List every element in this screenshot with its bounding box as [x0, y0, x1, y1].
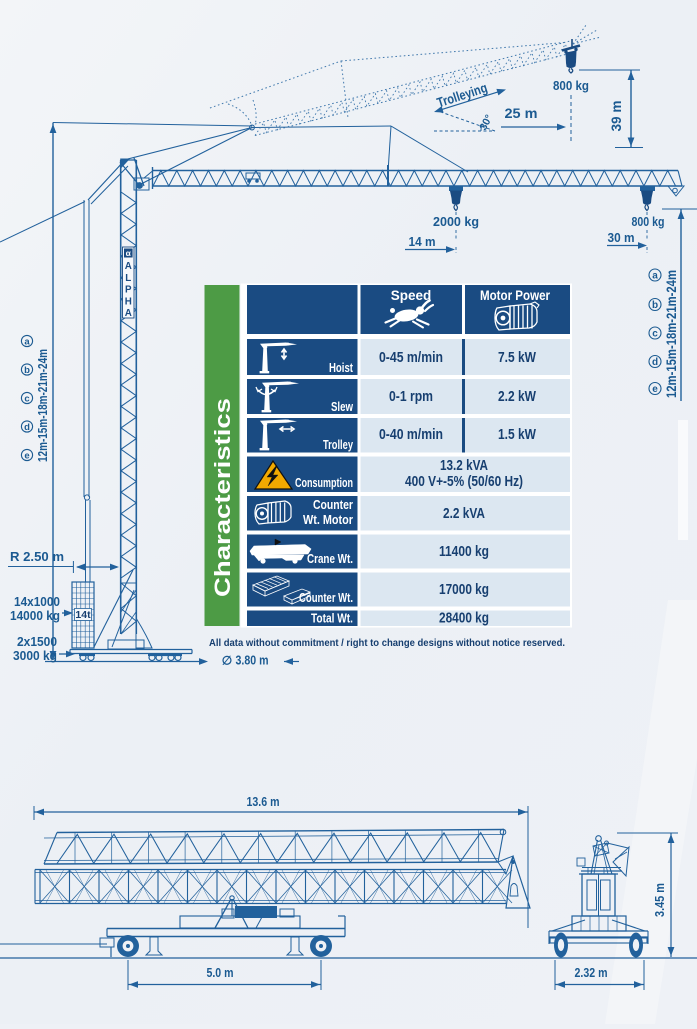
svg-text:11400 kg: 11400 kg — [439, 544, 489, 560]
svg-text:Slew: Slew — [331, 400, 353, 414]
svg-text:Speed: Speed — [391, 288, 432, 303]
svg-text:14 m: 14 m — [409, 234, 436, 249]
svg-text:800 kg: 800 kg — [632, 214, 665, 229]
svg-text:L: L — [125, 273, 131, 284]
svg-text:Total Wt.: Total Wt. — [311, 612, 353, 626]
svg-text:d: d — [652, 357, 658, 368]
svg-text:Counter: Counter — [313, 498, 353, 512]
svg-text:R 2.50 m: R 2.50 m — [10, 549, 64, 564]
svg-text:e: e — [24, 450, 29, 461]
svg-text:Characteristics: Characteristics — [210, 398, 235, 597]
svg-text:2.32 m: 2.32 m — [575, 965, 608, 980]
svg-text:e: e — [652, 384, 658, 395]
svg-text:12m-15m-18m-21m-24m: 12m-15m-18m-21m-24m — [663, 270, 679, 398]
svg-text:0-45 m/min: 0-45 m/min — [379, 349, 443, 366]
svg-text:13.6 m: 13.6 m — [247, 794, 280, 809]
svg-text:P: P — [125, 285, 132, 296]
svg-text:b: b — [24, 365, 30, 376]
svg-text:H: H — [125, 296, 132, 307]
svg-text:2x1500: 2x1500 — [17, 634, 57, 649]
svg-text:c: c — [652, 329, 658, 340]
svg-text:A: A — [125, 261, 132, 272]
svg-text:d: d — [24, 422, 30, 433]
svg-text:Consumption: Consumption — [295, 476, 353, 490]
svg-text:Crane Wt.: Crane Wt. — [307, 552, 353, 566]
svg-text:39 m: 39 m — [609, 101, 624, 132]
svg-text:Counter Wt.: Counter Wt. — [299, 591, 353, 605]
svg-text:28400 kg: 28400 kg — [439, 611, 489, 627]
svg-text:3.45 m: 3.45 m — [652, 883, 667, 917]
svg-text:A: A — [125, 308, 132, 319]
svg-text:3.80 m: 3.80 m — [236, 653, 269, 668]
svg-text:800 kg: 800 kg — [553, 78, 589, 93]
svg-text:a: a — [24, 336, 30, 347]
svg-text:1.5 kW: 1.5 kW — [498, 426, 537, 443]
svg-text:a: a — [652, 271, 658, 282]
svg-text:0-40 m/min: 0-40 m/min — [379, 426, 443, 443]
svg-text:3000 kg: 3000 kg — [13, 648, 57, 663]
svg-text:Motor Power: Motor Power — [480, 288, 551, 303]
svg-text:14000 kg: 14000 kg — [10, 608, 60, 623]
svg-text:2000 kg: 2000 kg — [433, 214, 479, 229]
svg-text:2.2 kW: 2.2 kW — [498, 388, 537, 405]
svg-text:14x1000: 14x1000 — [14, 594, 60, 609]
svg-text:0-1 rpm: 0-1 rpm — [389, 388, 433, 405]
svg-text:c: c — [24, 393, 29, 404]
svg-text:Wt. Motor: Wt. Motor — [303, 513, 353, 527]
svg-text:∅: ∅ — [222, 654, 232, 668]
svg-text:Trolley: Trolley — [323, 438, 353, 452]
svg-text:Hoist: Hoist — [329, 361, 354, 375]
svg-text:13.2 kVA: 13.2 kVA — [440, 458, 488, 474]
svg-text:All data without commitment /: All data without commitment / right to c… — [209, 637, 565, 649]
svg-text:α: α — [126, 248, 132, 258]
svg-text:b: b — [652, 300, 658, 311]
svg-text:17000 kg: 17000 kg — [439, 582, 489, 598]
svg-text:14t: 14t — [75, 609, 91, 621]
svg-text:400 V+-5% (50/60 Hz): 400 V+-5% (50/60 Hz) — [405, 474, 523, 490]
svg-text:12m-15m-18m-21m-24m: 12m-15m-18m-21m-24m — [35, 349, 50, 462]
svg-text:7.5 kW: 7.5 kW — [498, 349, 537, 366]
svg-text:25 m: 25 m — [505, 106, 538, 121]
svg-text:2.2 kVA: 2.2 kVA — [443, 506, 485, 522]
svg-text:30 m: 30 m — [608, 230, 635, 245]
svg-text:5.0 m: 5.0 m — [207, 965, 234, 980]
